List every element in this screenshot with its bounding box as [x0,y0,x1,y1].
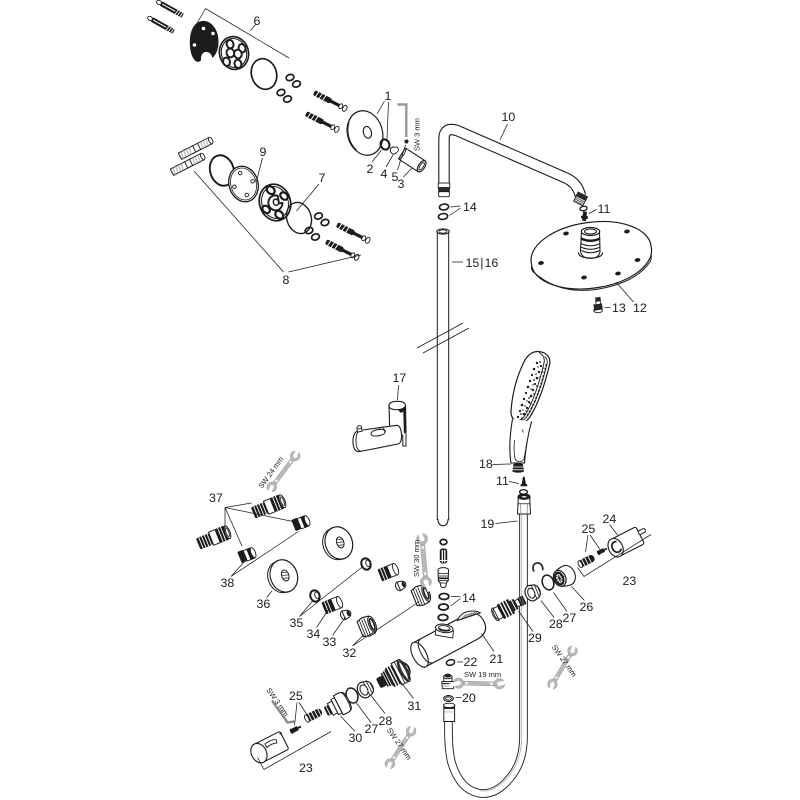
svg-text:SW 30 mm: SW 30 mm [412,540,421,577]
svg-text:11: 11 [496,474,509,488]
svg-text:2: 2 [367,162,374,176]
svg-text:33: 33 [323,635,337,649]
svg-text:17: 17 [393,371,407,385]
svg-text:1: 1 [385,89,392,103]
svg-text:26: 26 [580,600,594,614]
svg-text:15|16: 15|16 [466,256,499,270]
svg-text:30: 30 [349,731,363,745]
svg-text:9: 9 [260,145,267,159]
svg-text:14: 14 [463,200,477,214]
svg-text:14: 14 [462,591,476,605]
svg-text:28: 28 [549,617,563,631]
svg-text:8: 8 [283,273,290,287]
svg-text:4: 4 [381,167,388,181]
svg-text:24: 24 [603,512,617,526]
svg-text:35: 35 [290,616,304,630]
svg-text:19: 19 [481,517,495,531]
svg-text:25: 25 [582,522,596,536]
svg-text:SW 3 mm: SW 3 mm [413,118,422,151]
svg-text:38: 38 [221,576,235,590]
svg-text:6: 6 [254,14,261,28]
svg-text:18: 18 [479,457,493,471]
svg-text:29: 29 [528,631,542,645]
svg-text:36: 36 [257,597,271,611]
svg-text:23: 23 [623,574,637,588]
svg-text:34: 34 [307,627,321,641]
svg-text:12: 12 [633,301,647,315]
svg-text:SW 19 mm: SW 19 mm [464,670,501,679]
svg-text:31: 31 [408,699,422,713]
svg-text:20: 20 [462,691,476,705]
svg-text:7: 7 [319,171,326,185]
svg-text:23: 23 [299,761,313,775]
svg-text:22: 22 [464,655,478,669]
svg-text:37: 37 [209,491,223,505]
svg-text:10: 10 [502,110,516,124]
svg-text:27: 27 [563,611,577,625]
svg-text:28: 28 [379,714,393,728]
svg-text:21: 21 [490,652,504,666]
svg-text:13: 13 [612,301,626,315]
svg-text:11: 11 [598,202,611,216]
svg-text:3: 3 [398,177,405,191]
svg-text:32: 32 [343,646,357,660]
svg-text:25: 25 [289,689,303,703]
svg-text:27: 27 [365,722,379,736]
